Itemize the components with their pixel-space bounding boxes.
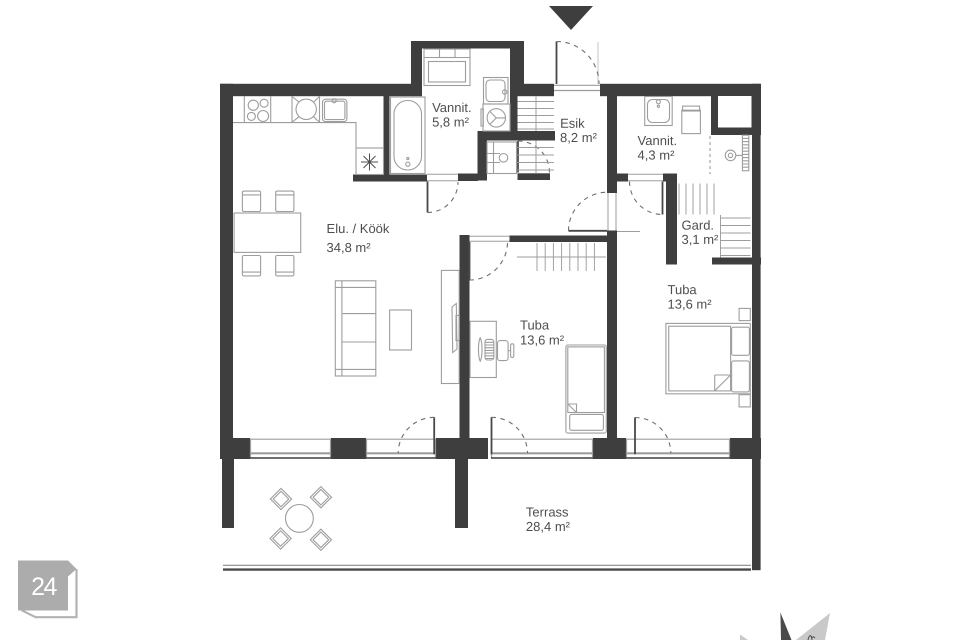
svg-text:Esik: Esik: [560, 116, 585, 131]
svg-text:13,6 m²: 13,6 m²: [520, 333, 565, 348]
svg-text:Gard.: Gard.: [682, 218, 715, 233]
svg-text:Elu. / Köök: Elu. / Köök: [327, 221, 390, 236]
svg-text:3,1 m²: 3,1 m²: [682, 232, 720, 247]
svg-text:28,4 m²: 28,4 m²: [526, 519, 571, 534]
svg-text:Vannit.: Vannit.: [432, 100, 472, 115]
svg-text:Tuba: Tuba: [520, 318, 550, 333]
svg-text:24: 24: [31, 573, 57, 601]
svg-text:13,6 m²: 13,6 m²: [668, 297, 713, 312]
svg-text:Tuba: Tuba: [668, 282, 698, 297]
svg-text:Terrass: Terrass: [526, 505, 569, 520]
svg-text:4,3 m²: 4,3 m²: [638, 148, 676, 163]
svg-text:8,2 m²: 8,2 m²: [560, 130, 598, 145]
svg-text:Vannit.: Vannit.: [638, 133, 678, 148]
svg-text:5,8 m²: 5,8 m²: [432, 114, 470, 129]
svg-text:34,8 m²: 34,8 m²: [327, 240, 372, 255]
